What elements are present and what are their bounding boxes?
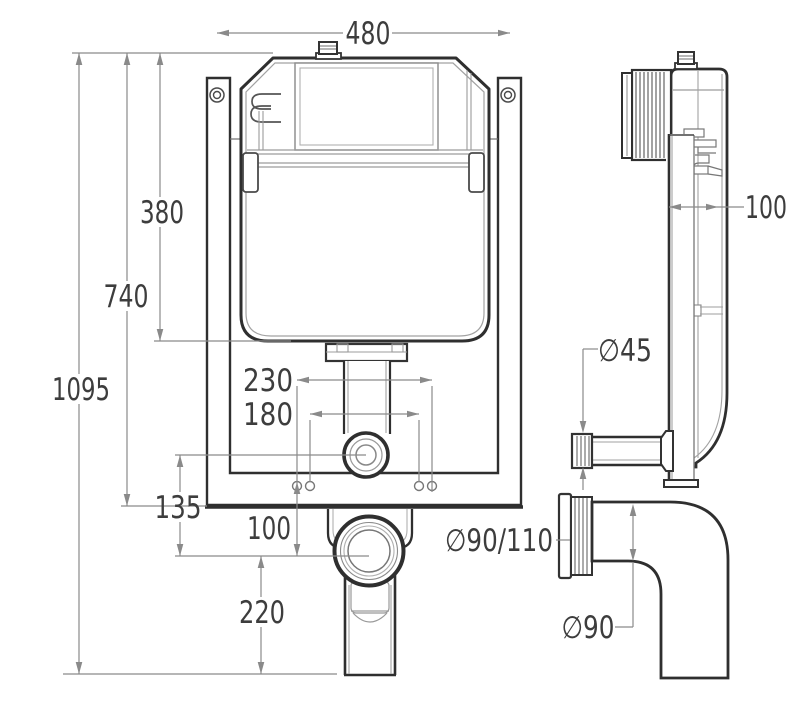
dim-1095-label: 1095 <box>52 372 110 408</box>
flush-valve-assembly <box>326 344 407 477</box>
dim-740-label: 740 <box>104 279 149 315</box>
dim-dia90-label: ∅90 <box>562 610 615 646</box>
dim-dia45-label: ∅45 <box>598 333 652 369</box>
inlet-nub-side <box>675 52 697 69</box>
dim-135-label: 135 <box>155 490 202 526</box>
dim-dia90-110-label: ∅90/110 <box>445 523 553 559</box>
inlet-nub-front <box>316 42 341 59</box>
front-view <box>205 42 523 676</box>
frame-screw-hole-left <box>210 88 224 102</box>
tank-clip-right <box>469 153 484 192</box>
flush-pipe-side <box>572 431 673 471</box>
access-window <box>295 63 438 150</box>
dim-380-label: 380 <box>140 195 184 231</box>
frame-screw-hole-right <box>501 88 515 102</box>
dim-100-front-label: 100 <box>247 511 291 547</box>
dim-100-side-label: 100 <box>745 190 787 226</box>
outlet-assembly <box>328 509 412 676</box>
flush-plate-shaft <box>622 70 671 160</box>
cistern-tank <box>241 42 489 341</box>
dim-220-label: 220 <box>239 595 285 631</box>
elbow-pipe <box>592 502 728 678</box>
dim-480-label: 480 <box>346 16 391 52</box>
outlet-circle <box>335 517 404 586</box>
dim-180-label: 180 <box>243 397 293 433</box>
dim-230-label: 230 <box>243 363 293 399</box>
drawing-canvas: 480 380 740 1095 230 180 135 100 220 100… <box>0 0 799 721</box>
technical-drawing-page: 480 380 740 1095 230 180 135 100 220 100… <box>0 0 799 721</box>
outlet-flange <box>559 494 592 578</box>
tank-clip-left <box>243 153 258 192</box>
